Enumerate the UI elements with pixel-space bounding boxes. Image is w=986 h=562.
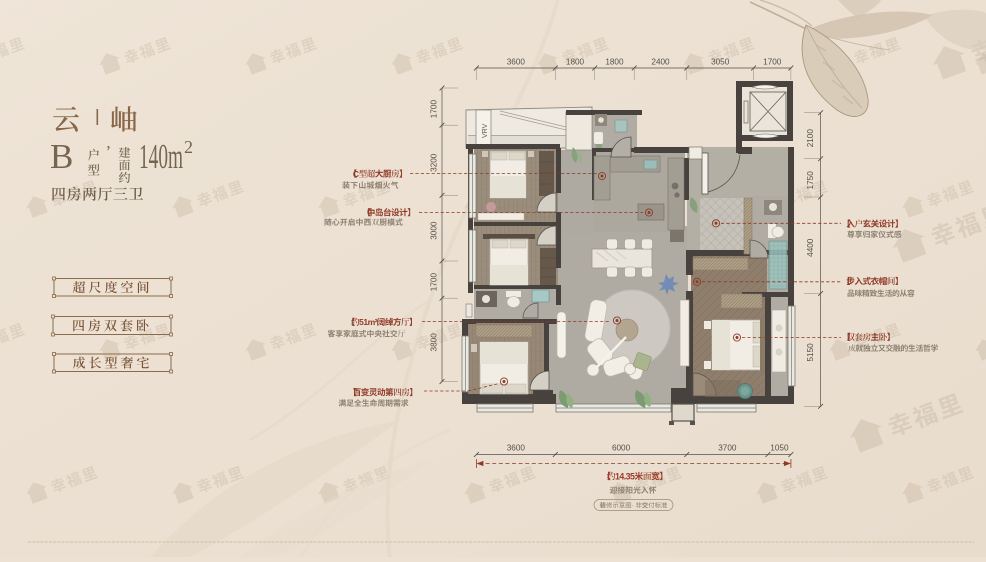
svg-text:1700: 1700: [430, 100, 439, 119]
svg-text:1700: 1700: [430, 273, 439, 292]
svg-text:3800: 3800: [430, 333, 439, 352]
svg-text:B: B: [50, 137, 73, 176]
svg-text:3700: 3700: [718, 444, 737, 453]
svg-text:5150: 5150: [806, 343, 815, 362]
svg-text:3200: 3200: [430, 153, 439, 172]
svg-text:·: ·: [632, 503, 634, 510]
svg-text:14.35: 14.35: [615, 471, 635, 481]
svg-text:1050: 1050: [770, 444, 789, 453]
svg-text:6000: 6000: [612, 444, 631, 453]
svg-text:1800: 1800: [605, 58, 624, 67]
svg-text:C: C: [353, 169, 359, 179]
svg-text:1700: 1700: [763, 58, 782, 67]
svg-text:140m: 140m: [139, 137, 183, 176]
svg-text:2400: 2400: [651, 58, 670, 67]
svg-text:2100: 2100: [806, 129, 815, 148]
svg-text:’: ’: [106, 142, 112, 161]
svg-text:3000: 3000: [430, 221, 439, 240]
svg-text:1750: 1750: [806, 171, 815, 190]
svg-text:4400: 4400: [806, 238, 815, 257]
svg-text:2: 2: [184, 137, 193, 157]
svg-text:1800: 1800: [566, 58, 585, 67]
svg-text:3600: 3600: [507, 444, 526, 453]
svg-text:51m²: 51m²: [359, 317, 378, 327]
svg-text:3600: 3600: [507, 58, 526, 67]
svg-text:3050: 3050: [711, 58, 730, 67]
svg-text:VRV: VRV: [482, 123, 489, 138]
